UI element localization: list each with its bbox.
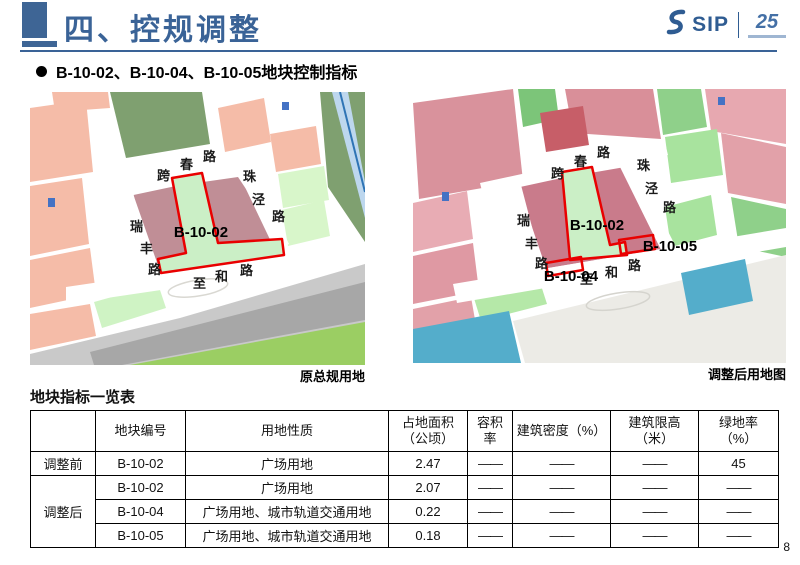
header-area: 占地面积 （公顷） [389, 411, 468, 452]
logo-divider [738, 12, 739, 38]
sip-s-icon [662, 8, 688, 41]
svg-text:瑞: 瑞 [517, 213, 530, 228]
bullet-icon [36, 66, 47, 77]
sip-logo-text: SIP [692, 13, 729, 37]
svg-text:和: 和 [605, 265, 618, 280]
cell-far: —— [468, 452, 513, 476]
svg-text:路: 路 [203, 149, 217, 164]
cell-use: 广场用地、城市轨道交通用地 [186, 500, 389, 524]
title-decoration-bar [22, 41, 57, 47]
slide: 四、控规调整 SIP 25 B-10-02、B-10-04、B-10-05地块控… [0, 0, 800, 565]
page-number: 8 [783, 540, 790, 554]
cell-density: —— [513, 500, 611, 524]
svg-text:跨: 跨 [551, 166, 565, 181]
table-title: 地块指标一览表 [30, 386, 135, 407]
right-b1005-label: B-10-05 [643, 238, 697, 255]
cell-height: —— [611, 524, 699, 548]
svg-text:路: 路 [663, 200, 677, 215]
table-row: 调整前 B-10-02 广场用地 2.47 —— —— —— 45 [31, 452, 779, 476]
cell-far: —— [468, 524, 513, 548]
section-bullet-line: B-10-02、B-10-04、B-10-05地块控制指标 [36, 59, 357, 83]
cell-area: 0.18 [389, 524, 468, 548]
header-use: 用地性质 [186, 411, 389, 452]
svg-text:丰: 丰 [140, 241, 153, 256]
svg-text:路: 路 [148, 262, 162, 277]
svg-text:春: 春 [573, 154, 588, 169]
cell-area: 0.22 [389, 500, 468, 524]
left-b1002-label: B-10-02 [174, 224, 228, 241]
title-underline [20, 50, 777, 52]
header-green: 绿地率 （%） [699, 411, 779, 452]
cell-code: B-10-04 [96, 500, 186, 524]
cell-code: B-10-02 [96, 476, 186, 500]
cell-density: —— [513, 452, 611, 476]
svg-text:春: 春 [179, 157, 194, 172]
group-before: 调整前 [31, 452, 96, 476]
header-far: 容积 率 [468, 411, 513, 452]
cell-use: 广场用地、城市轨道交通用地 [186, 524, 389, 548]
svg-text:路: 路 [240, 263, 254, 278]
anniversary-mark: 25 [748, 11, 786, 38]
cell-use: 广场用地 [186, 452, 389, 476]
right-b1002-label: B-10-02 [570, 217, 624, 234]
svg-text:泾: 泾 [252, 192, 265, 207]
cell-height: —— [611, 476, 699, 500]
svg-text:路: 路 [628, 258, 642, 273]
cell-green: —— [699, 524, 779, 548]
cell-height: —— [611, 452, 699, 476]
title-decoration-square [22, 2, 47, 38]
svg-text:跨: 跨 [157, 168, 171, 183]
cell-far: —— [468, 500, 513, 524]
cell-height: —— [611, 500, 699, 524]
page-title: 四、控规调整 [64, 5, 262, 49]
indicator-table: 地块编号 用地性质 占地面积 （公顷） 容积 率 建筑密度（%） 建筑限高 （米… [30, 410, 779, 548]
svg-text:和: 和 [215, 269, 228, 284]
table-header-row: 地块编号 用地性质 占地面积 （公顷） 容积 率 建筑密度（%） 建筑限高 （米… [31, 411, 779, 452]
svg-text:瑞: 瑞 [130, 219, 143, 234]
header-density: 建筑密度（%） [513, 411, 611, 452]
right-map-caption: 调整后用地图 [413, 364, 786, 383]
left-map-caption: 原总规用地 [30, 366, 365, 385]
svg-text:路: 路 [597, 145, 611, 160]
cell-code: B-10-02 [96, 452, 186, 476]
table-row: B-10-04 广场用地、城市轨道交通用地 0.22 —— —— —— —— [31, 500, 779, 524]
cell-area: 2.47 [389, 452, 468, 476]
cell-density: —— [513, 524, 611, 548]
anniversary-subtext-strip [748, 35, 786, 38]
table-row: 调整后 B-10-02 广场用地 2.07 —— —— —— —— [31, 476, 779, 500]
cell-far: —— [468, 476, 513, 500]
cell-area: 2.07 [389, 476, 468, 500]
bullet-text: B-10-02、B-10-04、B-10-05地块控制指标 [56, 59, 357, 83]
svg-text:泾: 泾 [645, 181, 658, 196]
svg-text:丰: 丰 [525, 236, 538, 251]
cell-green: —— [699, 500, 779, 524]
cell-code: B-10-05 [96, 524, 186, 548]
header-code: 地块编号 [96, 411, 186, 452]
sip-logo: SIP 25 [662, 8, 786, 41]
anniversary-number: 25 [756, 11, 778, 34]
group-after: 调整后 [31, 476, 96, 548]
cell-green: —— [699, 476, 779, 500]
right-b1004-label: B-10-04 [544, 268, 599, 285]
svg-text:珠: 珠 [243, 169, 257, 184]
svg-text:路: 路 [272, 209, 286, 224]
svg-text:至: 至 [193, 276, 206, 291]
cell-green: 45 [699, 452, 779, 476]
map-original-plan: 跨 春 路 珠 泾 路 瑞 丰 路 至 和 路 B-10-02 [30, 92, 365, 365]
svg-text:珠: 珠 [637, 158, 651, 173]
header-height: 建筑限高 （米） [611, 411, 699, 452]
cell-density: —— [513, 476, 611, 500]
header-empty [31, 411, 96, 452]
map-adjusted-plan: 跨 春 路 珠 泾 路 瑞 丰 路 至 和 路 B-10-02 B-10-05 … [413, 89, 786, 363]
table-row: B-10-05 广场用地、城市轨道交通用地 0.18 —— —— —— —— [31, 524, 779, 548]
cell-use: 广场用地 [186, 476, 389, 500]
